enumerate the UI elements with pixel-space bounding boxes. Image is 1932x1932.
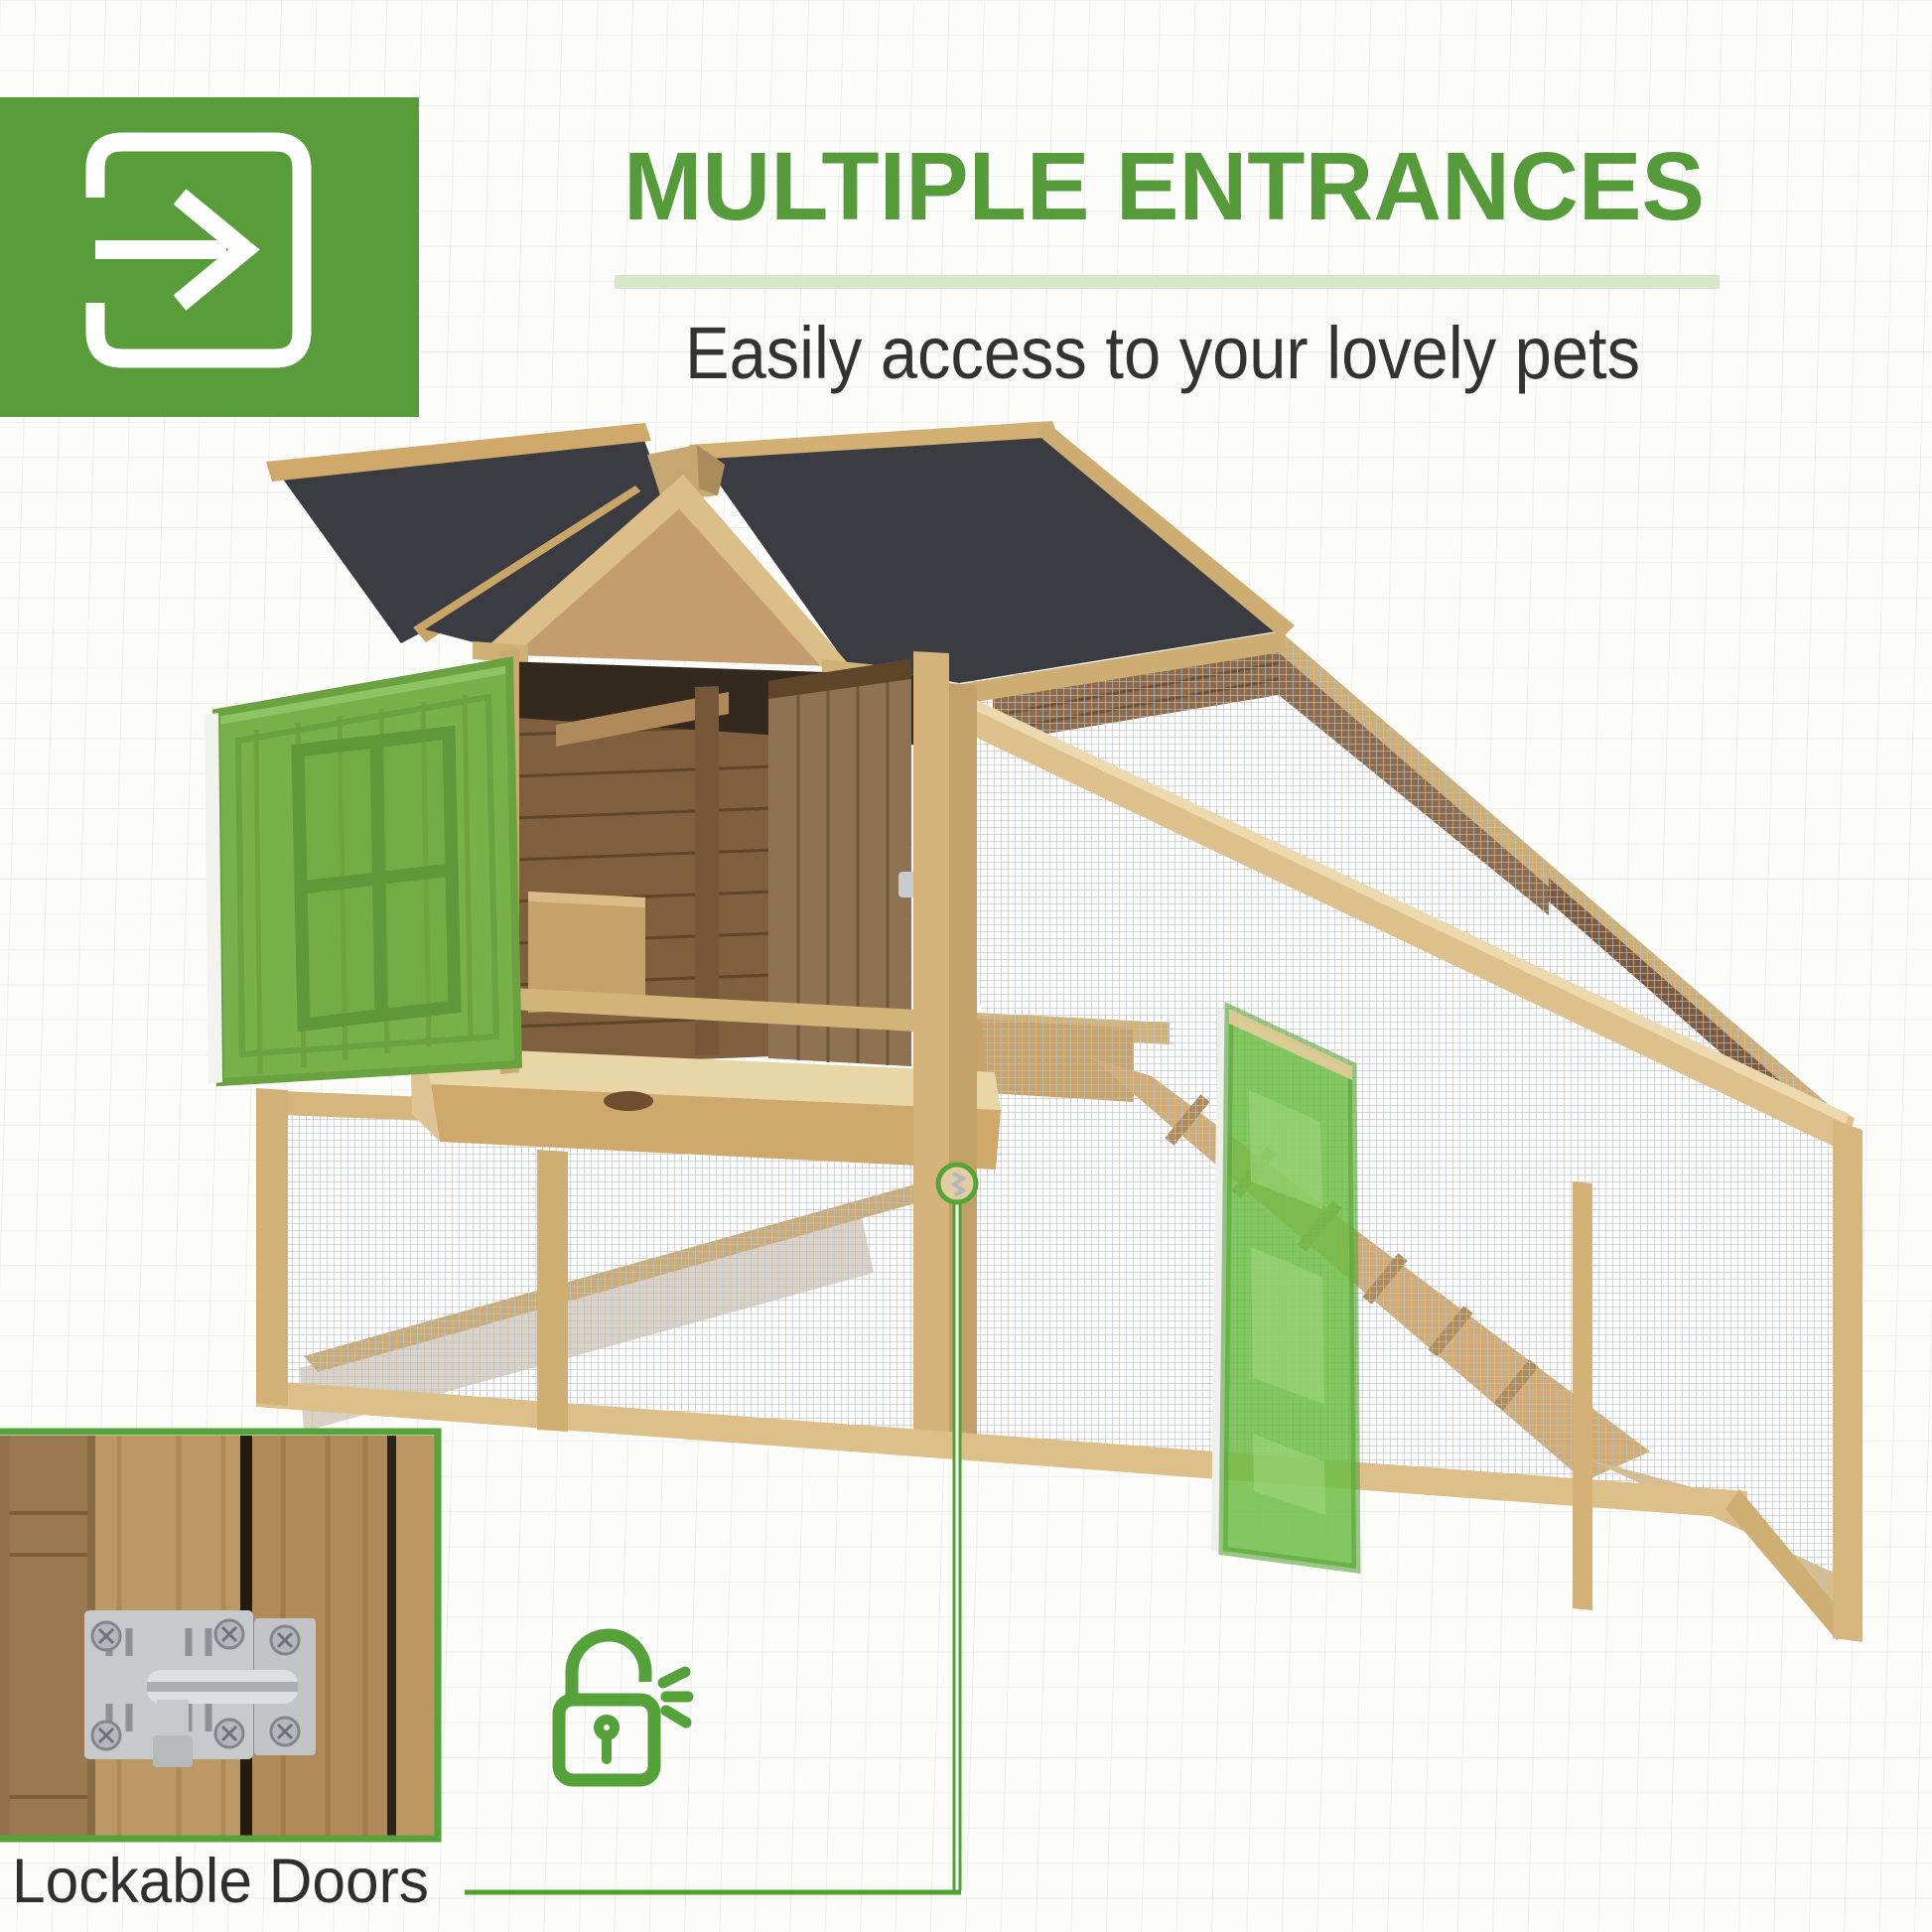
svg-text:MULTIPLE ENTRANCES: MULTIPLE ENTRANCES [623,132,1705,240]
svg-text:Lockable Doors: Lockable Doors [12,1847,429,1916]
svg-text:Easily access to your lovely p: Easily access to your lovely pets [685,312,1640,394]
